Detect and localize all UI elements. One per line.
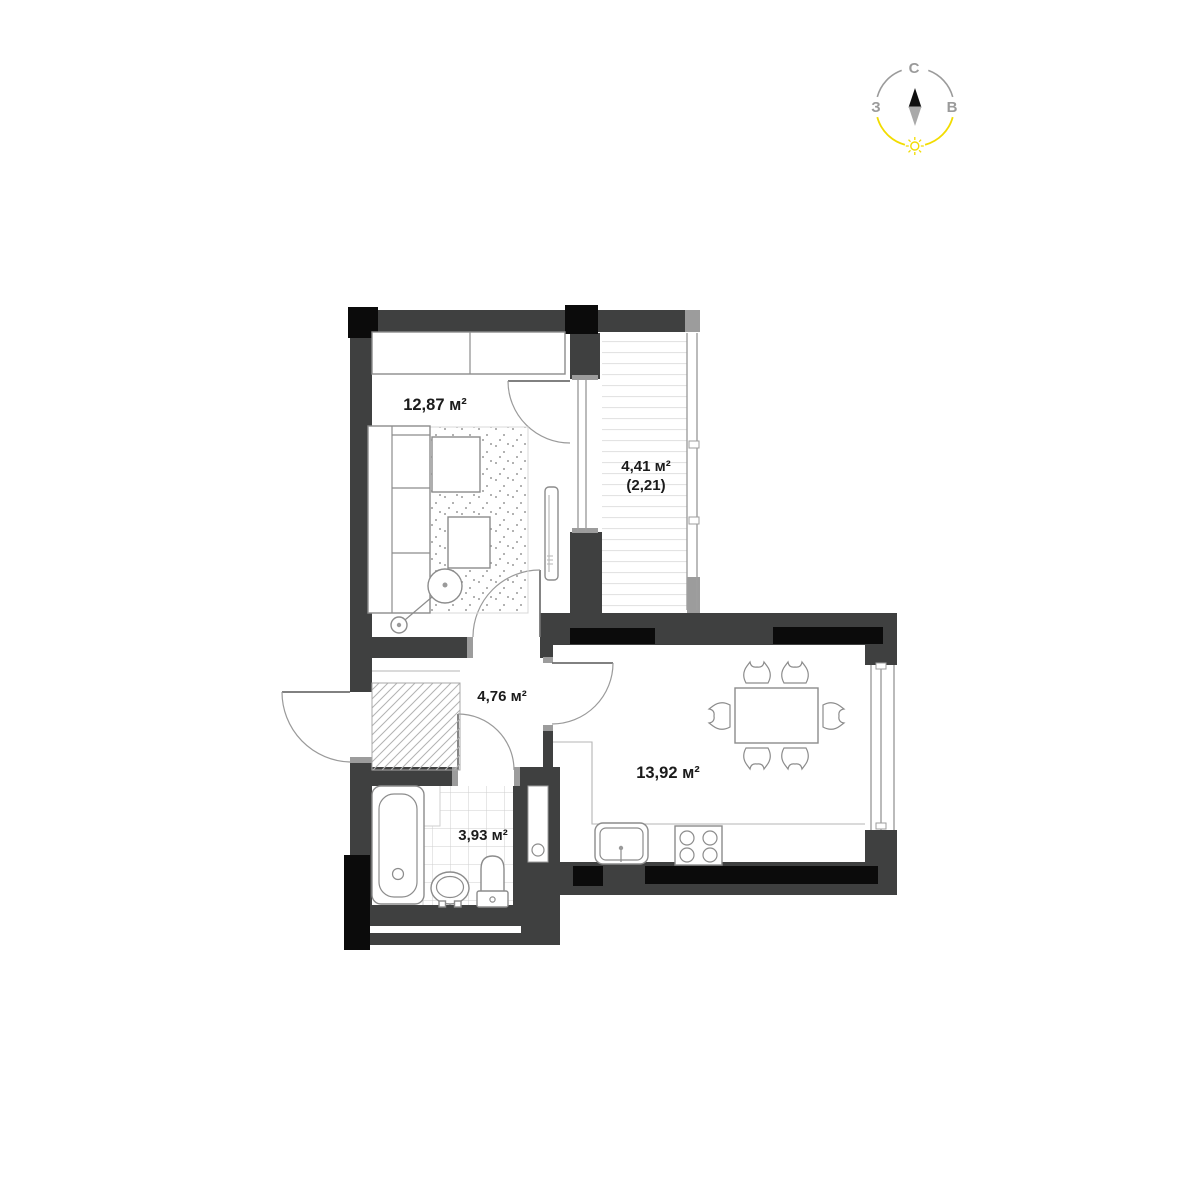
sofa (368, 426, 430, 613)
wall-bath-bottom (350, 905, 540, 926)
balcony-door-head (572, 375, 598, 380)
floor-plan-page: 12,87 м² 4,41 м² (2,21) 4,76 м² 13,92 м²… (0, 0, 1200, 1200)
wall-top-end (685, 310, 700, 332)
bathroom-area-label: 3,93 м² (458, 827, 507, 844)
wall-hall-kitchen-lower (543, 725, 553, 767)
compass-arc-top-right (928, 70, 952, 97)
balcony-glazing (687, 333, 699, 610)
wall-bath-kitchen-junction (521, 862, 560, 945)
floor-plan: 12,87 м² 4,41 м² (2,21) 4,76 м² 13,92 м²… (282, 305, 897, 950)
toilet (477, 856, 508, 907)
compass-east-label: В (947, 99, 958, 116)
bathtub (372, 786, 424, 904)
kitchen-area-label: 13,92 м² (636, 764, 700, 782)
bathroom-door (458, 714, 514, 770)
wall-accent-kitchen-top-left (570, 628, 655, 644)
wall-accent-kitchen-top-right (773, 627, 883, 644)
door-jamb (514, 767, 520, 786)
wall-bath-bottom-outer (368, 933, 533, 945)
wall-bedroom-hall (350, 637, 473, 658)
balcony-window-sill (572, 528, 598, 533)
door-jamb (543, 725, 553, 731)
kitchen-furniture (553, 662, 865, 865)
sun-icon (906, 137, 924, 155)
compass-arc-bottom-right (925, 117, 953, 145)
dining-table (735, 688, 818, 743)
wall-top (350, 310, 700, 332)
balcony-glazing-end (687, 577, 700, 613)
balcony-area-note-label: (2,21) (626, 477, 665, 494)
ventilation-duct (528, 786, 548, 862)
wall-duct-right (548, 786, 560, 862)
balcony-area-label: 4,41 м² (621, 458, 670, 475)
floor-plan-canvas: 12,87 м² 4,41 м² (2,21) 4,76 м² 13,92 м²… (0, 0, 1200, 1200)
hallway-closet (372, 671, 460, 770)
entrance-door (282, 692, 350, 762)
compass-arc-bottom-left (877, 117, 905, 145)
living-room-area-label: 12,87 м² (403, 396, 467, 414)
kitchen-sink (595, 823, 648, 864)
wall-accent-kitchen-bottom (645, 866, 878, 884)
compass-west-label: З (871, 99, 880, 116)
door-jamb (543, 657, 553, 663)
compass: С З В (871, 60, 957, 155)
living-room-furniture (368, 332, 565, 633)
tv (545, 487, 558, 580)
coffee-table (448, 517, 490, 568)
kitchen-window (871, 663, 894, 830)
kitchen-door (552, 663, 613, 724)
wall-bedroom-balcony-lower (570, 532, 602, 613)
balcony-door-glazing (578, 380, 586, 532)
ottoman (432, 437, 480, 492)
column-top-mid (565, 305, 598, 334)
kitchen-counter (553, 742, 865, 824)
hallway-area-label: 4,76 м² (477, 688, 526, 705)
compass-north-label: С (909, 60, 920, 77)
door-jamb (467, 637, 473, 658)
column-bottom-left (344, 855, 370, 950)
wall-accent-kitchen-bottom-left (573, 866, 603, 886)
stove (675, 826, 722, 865)
wall-bedroom-balcony-upper (570, 333, 600, 379)
entrance-jamb (350, 757, 372, 763)
wardrobe (372, 332, 565, 374)
compass-arc-top-left (877, 70, 901, 97)
compass-needle-icon (909, 88, 922, 126)
wall-bath-top-right (514, 767, 560, 786)
